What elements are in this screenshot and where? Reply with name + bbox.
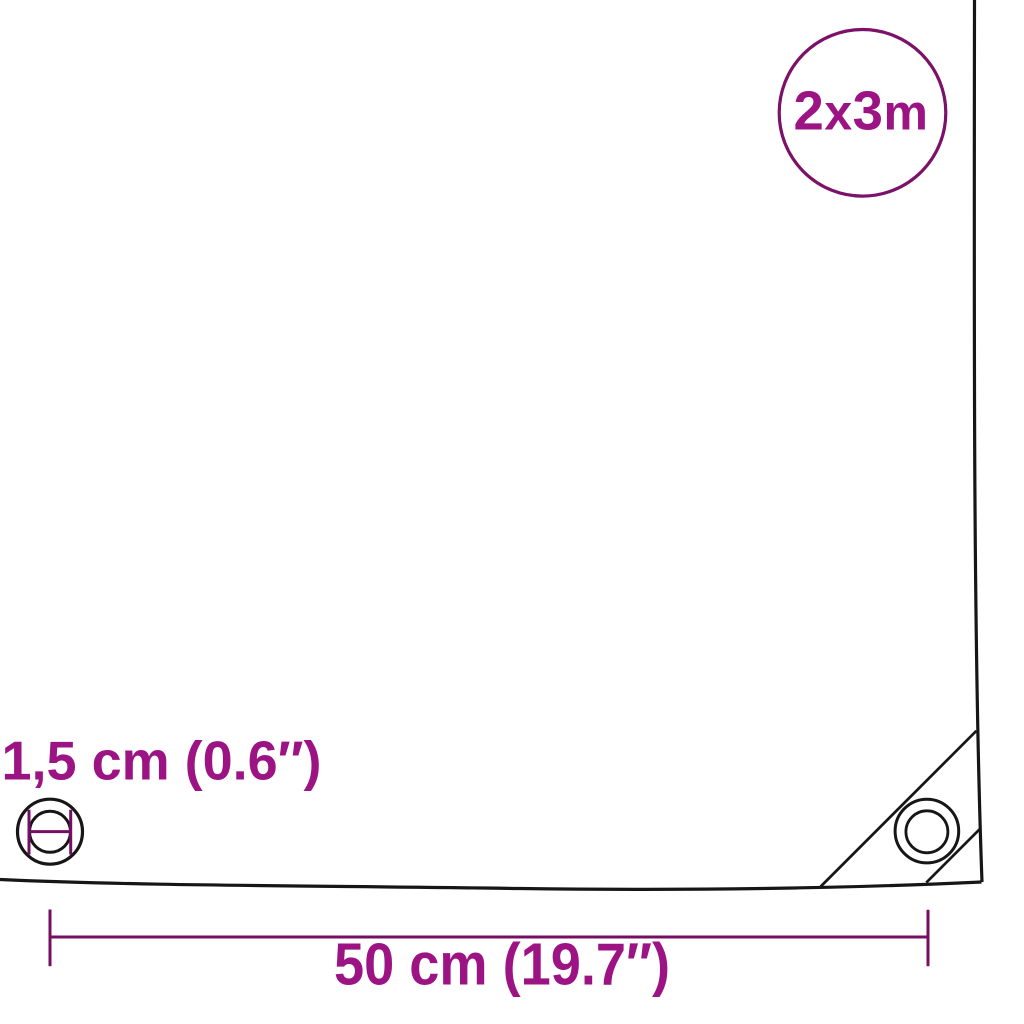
- svg-text:1,5 cm (0.6″): 1,5 cm (0.6″): [2, 730, 322, 792]
- svg-text:50 cm (19.7″): 50 cm (19.7″): [334, 931, 670, 997]
- svg-text:2x3m: 2x3m: [794, 80, 929, 141]
